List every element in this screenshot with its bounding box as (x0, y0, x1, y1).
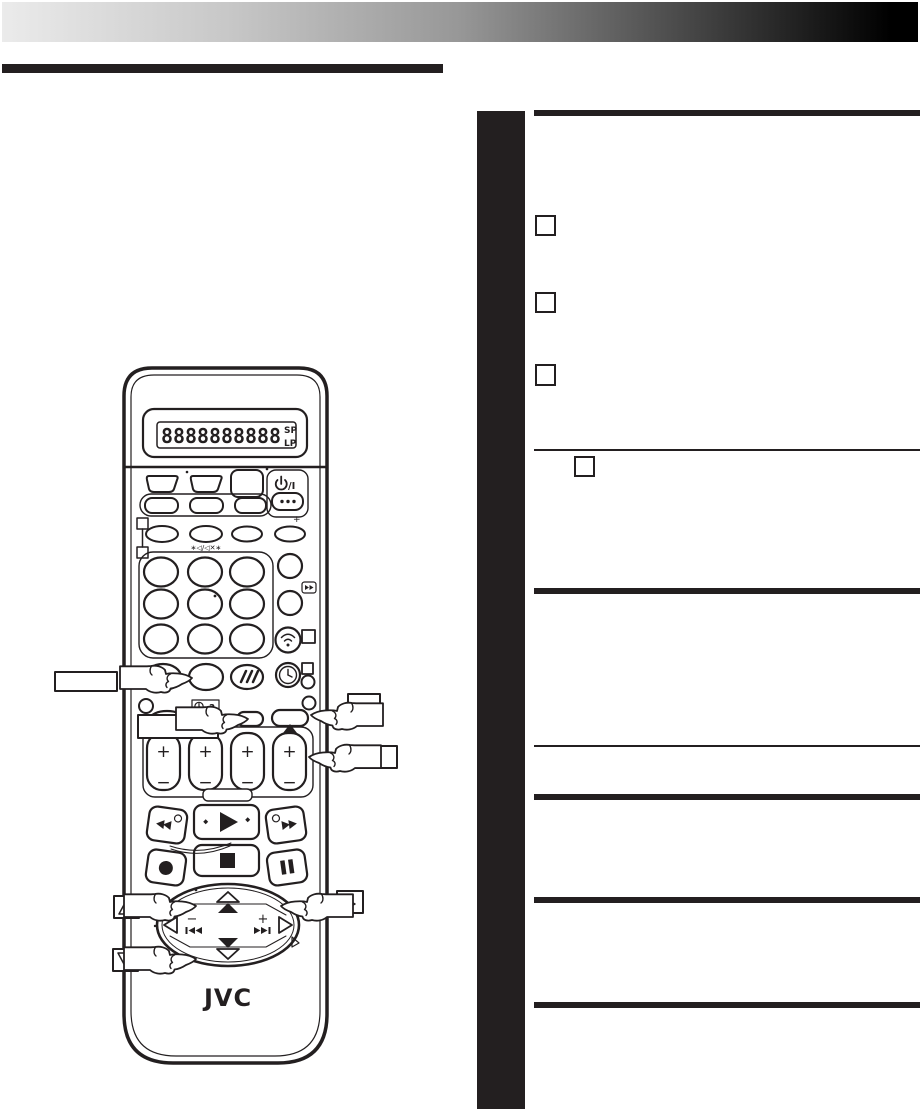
mute-label: ∗◁/◁✕∗ (191, 544, 222, 552)
pause-button (266, 849, 308, 887)
number-pad (139, 552, 273, 658)
step-checkbox-2 (535, 292, 556, 313)
number-button (144, 558, 178, 587)
fast-forward-button (265, 806, 307, 845)
content-rule-2 (534, 449, 920, 451)
pointing-hand-right (281, 894, 353, 921)
nav-plus-label: + (258, 912, 269, 927)
number-button (188, 590, 222, 619)
callout-box-1 (55, 672, 117, 691)
record-button (145, 849, 187, 887)
step-checkbox-4 (574, 456, 595, 477)
record-icon (158, 860, 174, 876)
stop-icon (220, 853, 235, 868)
jvc-logo: JVC (202, 984, 252, 1012)
double-arrow-icon (302, 582, 316, 593)
number-button (144, 625, 178, 654)
rocker-plus-label: + (156, 742, 170, 762)
content-rule-1 (534, 110, 920, 116)
number-button (230, 625, 264, 654)
triple-slash-icon (241, 671, 258, 682)
power-label: /I (288, 481, 295, 492)
nav-up-open-arrow (217, 892, 239, 902)
key-5-nub (214, 595, 217, 598)
manual-page: 8888888888 SP LP /I (0, 0, 920, 1109)
timer-onoff-button (272, 710, 308, 726)
pointing-hand-down (124, 947, 196, 974)
rocker-plus-label: + (198, 742, 212, 762)
lp-indicator: LP (284, 439, 297, 449)
tv-vcr-button (231, 470, 263, 497)
sp-indicator: SP (284, 426, 297, 436)
power-icon (276, 477, 287, 490)
right-button-column (276, 554, 317, 653)
play-icon (220, 812, 238, 832)
transmit-icon (276, 628, 301, 653)
pointing-hand-2 (176, 707, 248, 734)
rocker-plus-label: + (240, 742, 254, 762)
content-rule-6 (534, 897, 920, 903)
nav-right-arrow (279, 917, 292, 933)
remote-illustration: 8888888888 SP LP /I (40, 360, 410, 1075)
pointing-hand-1 (120, 666, 192, 693)
showview-button (231, 665, 263, 689)
marker-dot (186, 471, 189, 474)
rocker-plus-label: + (282, 742, 296, 762)
nav-minus-label: − (187, 912, 198, 927)
play-button (194, 805, 259, 839)
content-rule-5 (534, 794, 920, 800)
dots-button (272, 493, 303, 510)
aux-button (189, 664, 223, 690)
skip-back-icon (186, 927, 203, 934)
content-rule-7 (534, 1002, 920, 1008)
clock-icon (288, 670, 292, 678)
program-select-buttons (140, 468, 271, 516)
step-checkbox-1 (535, 215, 556, 236)
chapter-edge-tab-bar (477, 111, 525, 1109)
nav-down-open-arrow (217, 949, 239, 959)
section-title-bar (2, 64, 443, 73)
page-header-gradient-bar (2, 2, 918, 42)
number-button (230, 558, 264, 587)
rocker-minus-label: − (282, 773, 296, 793)
content-rule-3 (534, 588, 920, 594)
operation-buttons-row (146, 526, 305, 542)
number-button (188, 558, 222, 587)
rocker-minus-label: − (156, 773, 170, 793)
content-rule-4 (534, 745, 920, 747)
plus-mark: + (293, 515, 301, 525)
rewind-button (146, 806, 188, 845)
power-section: /I + (267, 470, 308, 525)
callout-squares (137, 518, 148, 558)
marker-dot (266, 468, 269, 471)
number-button (144, 590, 178, 619)
number-button (230, 590, 264, 619)
lcd-display: 8888888888 SP LP (143, 409, 307, 457)
skip-forward-icon (254, 927, 271, 934)
number-button (188, 625, 222, 654)
step-checkbox-3 (535, 364, 556, 386)
transport-buttons (145, 805, 308, 891)
eject-button (203, 789, 252, 801)
lcd-digits: 8888888888 (161, 424, 281, 448)
pointing-hand-3 (311, 703, 383, 730)
pointing-hand-up (124, 894, 196, 921)
timer-clock-button (276, 663, 300, 687)
